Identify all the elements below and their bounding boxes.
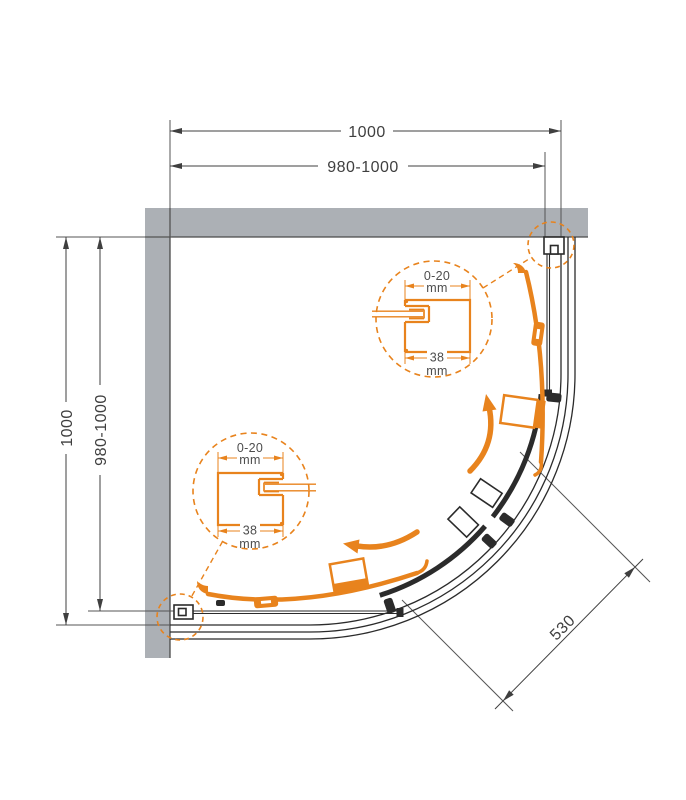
detail-drawing-bottom: 0-20 mm 38 mm (218, 441, 316, 551)
open-doors-orange (197, 263, 546, 609)
open-door-handle-lower (330, 558, 368, 591)
detail-bottom-range-unit: mm (239, 453, 260, 467)
detail-bottom-depth-label: 38 (243, 524, 258, 538)
top-wall (145, 208, 588, 237)
dimension-top-adjust: 980-1000 (170, 157, 545, 176)
enclosure-frame (170, 237, 575, 639)
dimension-left-adjust: 980-1000 (92, 237, 111, 611)
detail-top-depth-label: 38 (430, 351, 445, 365)
shower-enclosure-plan-page: 1000 980-1000 1000 980-1000 530 (0, 0, 686, 800)
detail-top-range-unit: mm (426, 281, 447, 295)
detail-top-profile-body (405, 300, 470, 352)
door-handle-upper (471, 479, 502, 508)
slide-arrow-up (470, 394, 497, 471)
bottom-glass-bracket (216, 600, 225, 606)
dim-top-total-label: 1000 (348, 124, 386, 141)
slide-arrow-left (343, 532, 417, 554)
left-wall (145, 208, 170, 658)
dim-left-adjust-label: 980-1000 (93, 394, 110, 466)
detail-top-depth-unit: mm (426, 364, 447, 378)
shower-enclosure-plan: 1000 980-1000 1000 980-1000 530 (0, 0, 686, 800)
door-right-curl (417, 561, 427, 573)
wall-profile-top-right (544, 237, 564, 254)
open-door-handle-upper (500, 395, 545, 429)
dimension-left-total: 1000 (58, 237, 77, 625)
door-handle-lower (448, 507, 479, 537)
detail-bottom-depth-unit: mm (239, 537, 260, 551)
detail-drawing-top: 0-20 mm 38 mm (372, 269, 470, 378)
walls (145, 208, 588, 658)
sliding-door-lower (380, 526, 485, 595)
detail-bottom-profile-body (218, 473, 283, 525)
detail-top-profile-pocket (405, 306, 429, 322)
dim-top-adjust-label: 980-1000 (327, 159, 399, 176)
wall-profile-bottom-left (174, 605, 193, 619)
glass-end-cap-bottom (397, 609, 403, 617)
dim-left-total-label: 1000 (59, 409, 76, 447)
door-roller-clamp-upper (531, 321, 545, 346)
dimension-top-total: 1000 (170, 122, 561, 141)
track-arc-outer (170, 237, 575, 639)
track-arc-middle (170, 237, 568, 632)
detail-bottom-profile-pocket (259, 479, 283, 495)
open-door-upper (500, 263, 545, 475)
wall-profiles (174, 237, 564, 619)
door-roller-clamp-lower (254, 595, 279, 608)
dimension-door-opening: 530 (495, 559, 643, 709)
